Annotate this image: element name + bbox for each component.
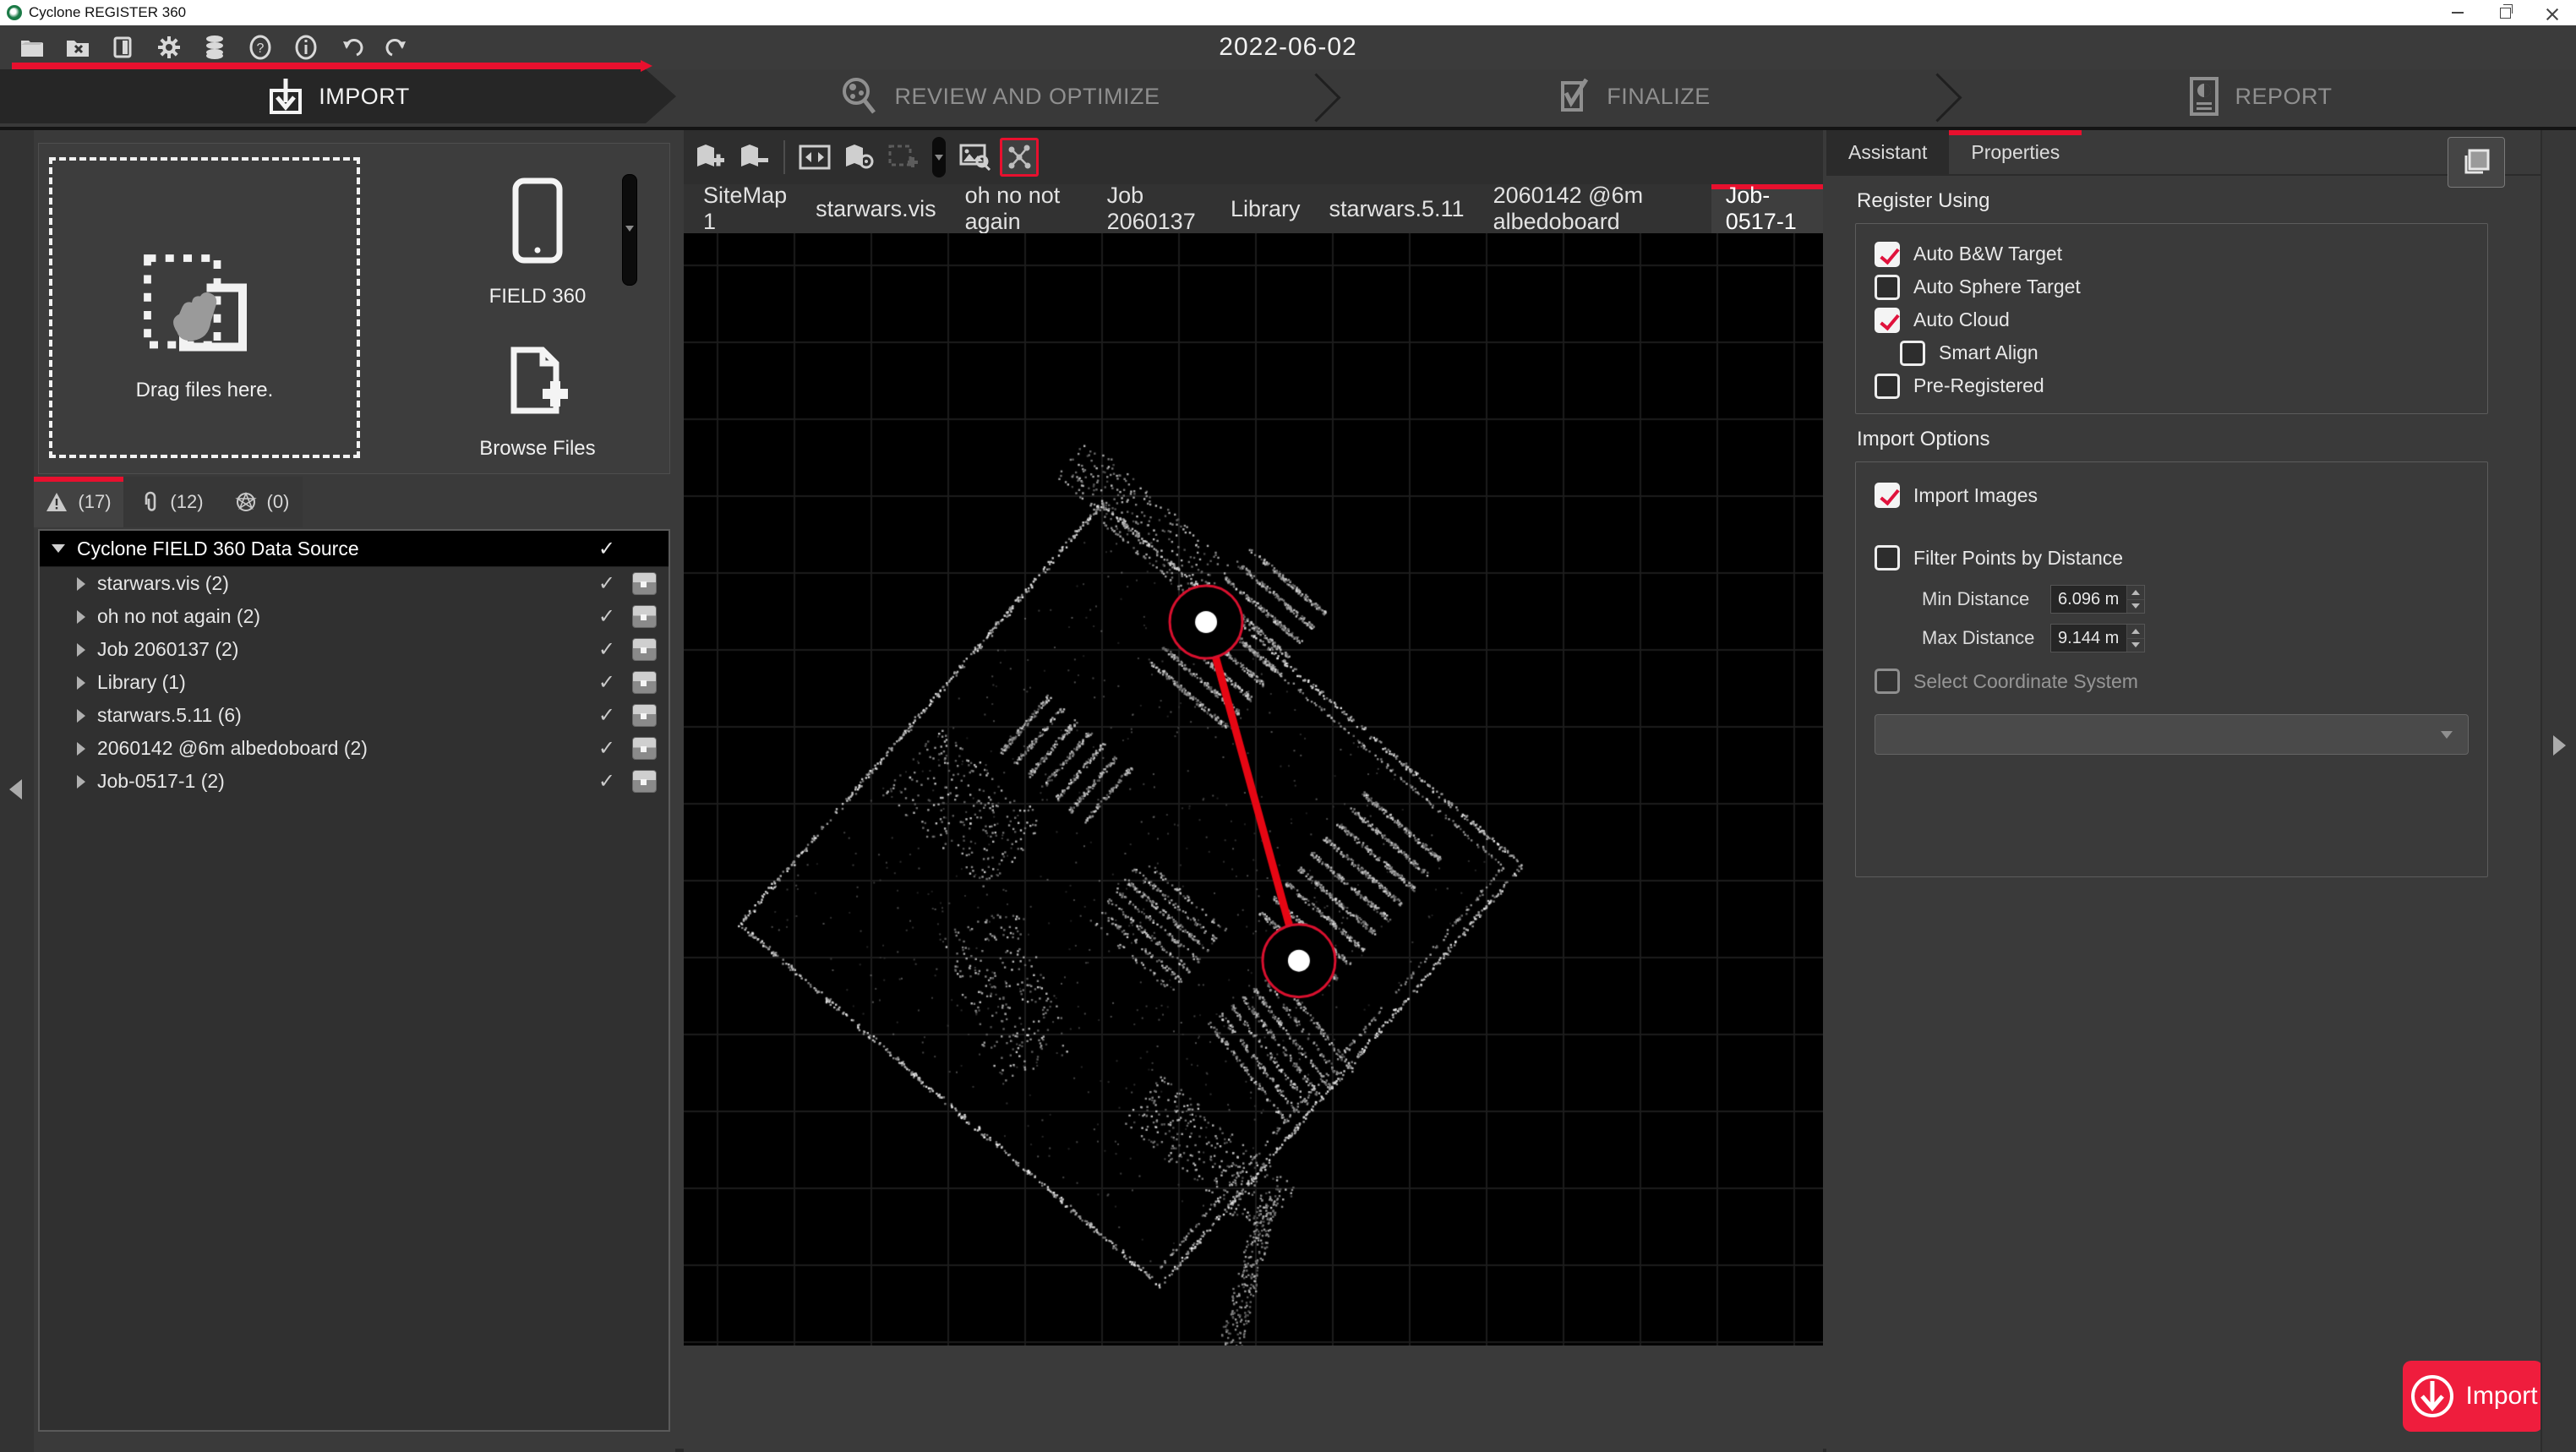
source-list-tabs: (17) (12) (0) <box>34 477 303 527</box>
info-button[interactable] <box>289 30 323 64</box>
option-row: Import Images <box>1875 476 2469 515</box>
dashed-select-icon <box>887 144 918 171</box>
tree-item-checkbox[interactable] <box>588 637 625 662</box>
viewer-tab-label: Job 2060137 <box>1107 183 1202 235</box>
checkbox-auto-sphere-target[interactable] <box>1875 275 1900 300</box>
tree-item-label: Job 2060137 (2) <box>97 638 239 661</box>
visual-alignment-button[interactable] <box>1000 138 1039 177</box>
tab-scans-count: (17) <box>78 491 111 513</box>
remove-sitemap-button[interactable] <box>734 138 773 177</box>
checkbox-auto-bw-target[interactable] <box>1875 242 1900 267</box>
collapse-left-panel-button[interactable] <box>9 779 22 800</box>
left-collapse-strip <box>0 130 34 1452</box>
image-thumbnail-icon[interactable] <box>632 638 657 661</box>
tree-row[interactable]: starwars.5.11 (6) <box>40 699 669 732</box>
viewer-tab-label: SiteMap 1 <box>703 183 787 235</box>
finalize-check-icon <box>1556 76 1593 117</box>
image-review-button[interactable] <box>956 138 995 177</box>
tab-report[interactable]: REPORT <box>1944 69 2576 123</box>
report-doc-icon <box>2187 76 2221 117</box>
workflow-progress-line <box>12 63 641 69</box>
viewer-tab-label: starwars.vis <box>816 196 936 222</box>
viewer-tab[interactable]: 2060142 @6m albedoboard <box>1479 184 1711 233</box>
workflow-step-label: REPORT <box>2235 84 2332 110</box>
tab-assistant[interactable]: Assistant <box>1826 130 1949 174</box>
folder-open-icon <box>19 36 45 58</box>
image-thumbnail-icon[interactable] <box>632 671 657 694</box>
chevron-right-icon[interactable] <box>77 742 85 756</box>
maximize-button[interactable] <box>2481 0 2529 25</box>
tree-item-label: oh no not again (2) <box>97 605 260 628</box>
cyclone-register-360-window: Cyclone REGISTER 360 ? 2022-06-02 IMPORT… <box>0 0 2576 1449</box>
svg-text:?: ? <box>257 41 265 56</box>
checkbox-label: Auto Sphere Target <box>1913 276 2081 298</box>
workflow-step-label: FINALIZE <box>1607 84 1711 110</box>
image-thumbnail-icon[interactable] <box>632 704 657 727</box>
register-using-title: Register Using <box>1857 189 2488 213</box>
checkbox-smart-align[interactable] <box>1900 341 1925 366</box>
viewer-tab-bar: SiteMap 1 starwars.vis oh no not again J… <box>684 184 1823 233</box>
tab-attachments[interactable]: (12) <box>123 477 221 527</box>
field-360-label: FIELD 360 <box>461 285 614 308</box>
toolbar-separator <box>783 140 785 174</box>
viewer-tab-label: oh no not again <box>965 183 1078 235</box>
field-360-scrollbar[interactable] <box>622 174 637 286</box>
import-tray-icon <box>266 77 305 116</box>
tab-attachments-count: (12) <box>170 491 203 513</box>
info-icon <box>293 35 319 60</box>
workflow-bar: IMPORT REVIEW AND OPTIMIZE FINALIZE REPO… <box>0 69 2576 130</box>
tree-item-label: 2060142 @6m albedoboard (2) <box>97 737 368 760</box>
viewer-tab[interactable]: Library <box>1216 184 1315 233</box>
tree-item-checkbox[interactable] <box>588 769 625 794</box>
link-network-icon <box>1005 143 1034 172</box>
map-plus-icon <box>694 143 726 172</box>
app-logo-icon <box>7 5 22 20</box>
settings-button[interactable] <box>152 30 186 64</box>
tab-finalize[interactable]: FINALIZE <box>1323 69 1944 123</box>
tree-item-label: Library (1) <box>97 671 186 694</box>
import-button[interactable]: Import <box>2403 1361 2543 1432</box>
import-options-group: Import Images Filter Points by Distance … <box>1855 461 2488 877</box>
viewer-tab-label: starwars.5.11 <box>1329 196 1465 222</box>
browse-files-button[interactable]: Browse Files <box>461 345 614 461</box>
viewer-tab[interactable]: starwars.vis <box>801 184 951 233</box>
tree-item-checkbox[interactable] <box>588 736 625 761</box>
checkbox-label: Filter Points by Distance <box>1913 547 2123 570</box>
workflow-step-label: REVIEW AND OPTIMIZE <box>894 84 1160 110</box>
tree-item-label: starwars.vis (2) <box>97 572 229 595</box>
tab-targets[interactable]: (0) <box>221 477 303 527</box>
max-distance-input[interactable] <box>2051 625 2126 652</box>
redo-button[interactable] <box>380 30 414 64</box>
viewer-tab[interactable]: starwars.5.11 <box>1315 184 1479 233</box>
checkbox-label: Auto B&W Target <box>1913 243 2062 265</box>
right-panel-tabs: Assistant Properties <box>1826 130 2541 176</box>
chevron-right-icon[interactable] <box>77 676 85 690</box>
import-options-title: Import Options <box>1857 428 2488 451</box>
checkbox-label: Smart Align <box>1939 341 2038 364</box>
image-thumbnail-icon[interactable] <box>632 605 657 628</box>
checkbox-label: Import Images <box>1913 484 2038 507</box>
tree-root-row[interactable]: Cyclone FIELD 360 Data Source <box>40 531 669 567</box>
checkbox-auto-cloud[interactable] <box>1875 308 1900 333</box>
viewer-tab[interactable]: Job-0517-1 <box>1711 184 1823 233</box>
image-thumbnail-icon[interactable] <box>632 770 657 793</box>
tree-row[interactable]: oh no not again (2) <box>40 600 669 633</box>
import-source-panel: Drag files here. FIELD 360 Browse Files … <box>34 130 675 1452</box>
tree-item-checkbox[interactable] <box>588 604 625 629</box>
max-distance-decrement-button[interactable] <box>2127 639 2144 652</box>
max-distance-increment-button[interactable] <box>2127 625 2144 639</box>
properties-panel: Assistant Properties Register Using Auto… <box>1826 130 2541 1452</box>
area-select-button[interactable] <box>883 138 922 177</box>
checkbox-filter-points[interactable] <box>1875 545 1900 570</box>
tree-row[interactable]: Library (1) <box>40 666 669 699</box>
tree-item-label: Job-0517-1 (2) <box>97 770 225 793</box>
storage-button[interactable] <box>198 30 232 64</box>
database-icon <box>205 35 225 60</box>
option-row: Auto B&W Target <box>1875 237 2469 270</box>
workflow-step-label: IMPORT <box>319 84 410 110</box>
close-button[interactable] <box>2529 0 2576 25</box>
coordinate-system-select[interactable] <box>1875 714 2469 755</box>
tab-scans[interactable]: (17) <box>34 477 123 527</box>
file-plus-icon <box>502 345 573 423</box>
help-button[interactable]: ? <box>243 30 277 64</box>
checkbox-label: Auto Cloud <box>1913 308 2010 331</box>
warning-triangle-icon <box>46 492 68 512</box>
checkbox-label: Select Coordinate System <box>1913 670 2138 693</box>
right-collapse-strip <box>2541 130 2576 1452</box>
image-magnifier-icon <box>959 144 991 171</box>
zoom-slider[interactable] <box>932 137 946 177</box>
open-project-button[interactable] <box>15 30 49 64</box>
viewer-tab-label: Library <box>1231 196 1301 222</box>
option-row: Pre-Registered <box>1875 369 2469 402</box>
min-distance-row: Min Distance <box>1922 582 2469 616</box>
viewer-tab[interactable]: oh no not again <box>951 184 1093 233</box>
max-distance-label: Max Distance <box>1922 627 2050 649</box>
project-date-label: 2022-06-02 <box>1219 33 1356 62</box>
option-row: Filter Points by Distance <box>1875 538 2469 577</box>
max-distance-row: Max Distance <box>1922 621 2469 655</box>
import-arrow-circle-icon <box>2409 1373 2456 1420</box>
tab-assistant-label: Assistant <box>1848 141 1927 164</box>
drop-zone[interactable]: Drag files here. <box>49 157 360 458</box>
checkbox-label: Pre-Registered <box>1913 374 2044 397</box>
viewer-tab-label: Job-0517-1 <box>1726 183 1809 235</box>
framed-map-icon <box>799 145 831 170</box>
viewer-tab[interactable]: SiteMap 1 <box>689 184 801 233</box>
archive-box-icon <box>112 35 135 59</box>
tree-item-checkbox[interactable] <box>588 571 625 596</box>
drop-zone-label: Drag files here. <box>52 379 357 402</box>
source-tree: Cyclone FIELD 360 Data Source starwars.v… <box>38 529 670 1432</box>
point-cloud-view <box>684 233 1823 1346</box>
drag-hand-icon <box>141 252 268 379</box>
question-icon: ? <box>248 35 273 60</box>
redo-icon <box>385 35 409 59</box>
close-project-button[interactable] <box>61 30 95 64</box>
min-distance-input[interactable] <box>2051 586 2126 613</box>
chevron-right-icon[interactable] <box>77 610 85 624</box>
map-minus-icon <box>738 143 770 172</box>
import-source-box: Drag files here. FIELD 360 Browse Files <box>38 143 670 474</box>
min-distance-decrement-button[interactable] <box>2127 600 2144 614</box>
window-title: Cyclone REGISTER 360 <box>29 4 186 21</box>
tab-import[interactable]: IMPORT <box>0 69 676 123</box>
archive-project-button[interactable] <box>106 30 140 64</box>
minimize-button[interactable] <box>2434 0 2481 25</box>
tree-row[interactable]: 2060142 @6m albedoboard (2) <box>40 732 669 765</box>
sitemap-viewer: SiteMap 1 starwars.vis oh no not again J… <box>684 130 1823 1452</box>
chevron-right-icon[interactable] <box>77 577 85 591</box>
option-row: Auto Sphere Target <box>1875 270 2469 303</box>
add-sitemap-button[interactable] <box>690 138 729 177</box>
browse-files-label: Browse Files <box>461 437 614 461</box>
chevron-right-icon[interactable] <box>77 775 85 789</box>
phone-icon <box>511 177 564 267</box>
undo-button[interactable] <box>335 30 368 64</box>
option-row: Select Coordinate System <box>1875 662 2469 701</box>
import-button-label: Import <box>2466 1382 2538 1411</box>
viewer-tab-label: 2060142 @6m albedoboard <box>1493 183 1697 235</box>
collapse-right-panel-button[interactable] <box>2553 735 2566 756</box>
min-distance-label: Min Distance <box>1922 588 2050 610</box>
gear-icon <box>156 35 182 60</box>
map-location-button[interactable] <box>839 138 878 177</box>
tree-item-checkbox[interactable] <box>588 670 625 695</box>
viewer-tab[interactable]: Job 2060137 <box>1093 184 1216 233</box>
tree-row[interactable]: Job 2060137 (2) <box>40 633 669 666</box>
tab-properties[interactable]: Properties <box>1949 130 2082 174</box>
review-magnifier-icon <box>838 75 881 117</box>
checkbox-pre-registered[interactable] <box>1875 374 1900 399</box>
tab-targets-count: (0) <box>267 491 290 513</box>
map-pin-icon <box>843 143 875 172</box>
target-icon <box>235 491 257 513</box>
min-distance-increment-button[interactable] <box>2127 586 2144 600</box>
checkbox-import-images[interactable] <box>1875 483 1900 508</box>
image-thumbnail-icon[interactable] <box>632 737 657 760</box>
point-cloud-canvas[interactable] <box>684 233 1823 1346</box>
checkbox-select-coordinate-system[interactable] <box>1875 669 1900 694</box>
tree-row[interactable]: Job-0517-1 (2) <box>40 765 669 798</box>
tree-root-label: Cyclone FIELD 360 Data Source <box>77 538 359 560</box>
field-360-button[interactable]: FIELD 360 <box>461 177 614 308</box>
titlebar: Cyclone REGISTER 360 <box>0 0 2576 25</box>
tree-row[interactable]: starwars.vis (2) <box>40 567 669 600</box>
overlapping-panels-icon <box>2459 145 2493 179</box>
tree-root-checkbox[interactable] <box>588 537 625 561</box>
tree-item-label: starwars.5.11 (6) <box>97 704 242 727</box>
tree-item-checkbox[interactable] <box>588 703 625 728</box>
paperclip-icon <box>141 491 160 513</box>
chevron-right-icon[interactable] <box>77 709 85 723</box>
tab-review-and-optimize[interactable]: REVIEW AND OPTIMIZE <box>676 69 1323 123</box>
fit-sitemap-button[interactable] <box>795 138 834 177</box>
undo-icon <box>340 35 363 59</box>
register-using-group: Auto B&W Target Auto Sphere Target Auto … <box>1855 223 2488 414</box>
chevron-down-icon[interactable] <box>52 544 65 553</box>
option-row: Smart Align <box>1900 336 2469 369</box>
tab-properties-label: Properties <box>1971 141 2060 164</box>
folder-close-icon <box>65 36 90 58</box>
viewer-toolbar <box>684 130 1823 184</box>
image-thumbnail-icon[interactable] <box>632 572 657 595</box>
option-row: Auto Cloud <box>1875 303 2469 336</box>
chevron-right-icon[interactable] <box>77 643 85 657</box>
